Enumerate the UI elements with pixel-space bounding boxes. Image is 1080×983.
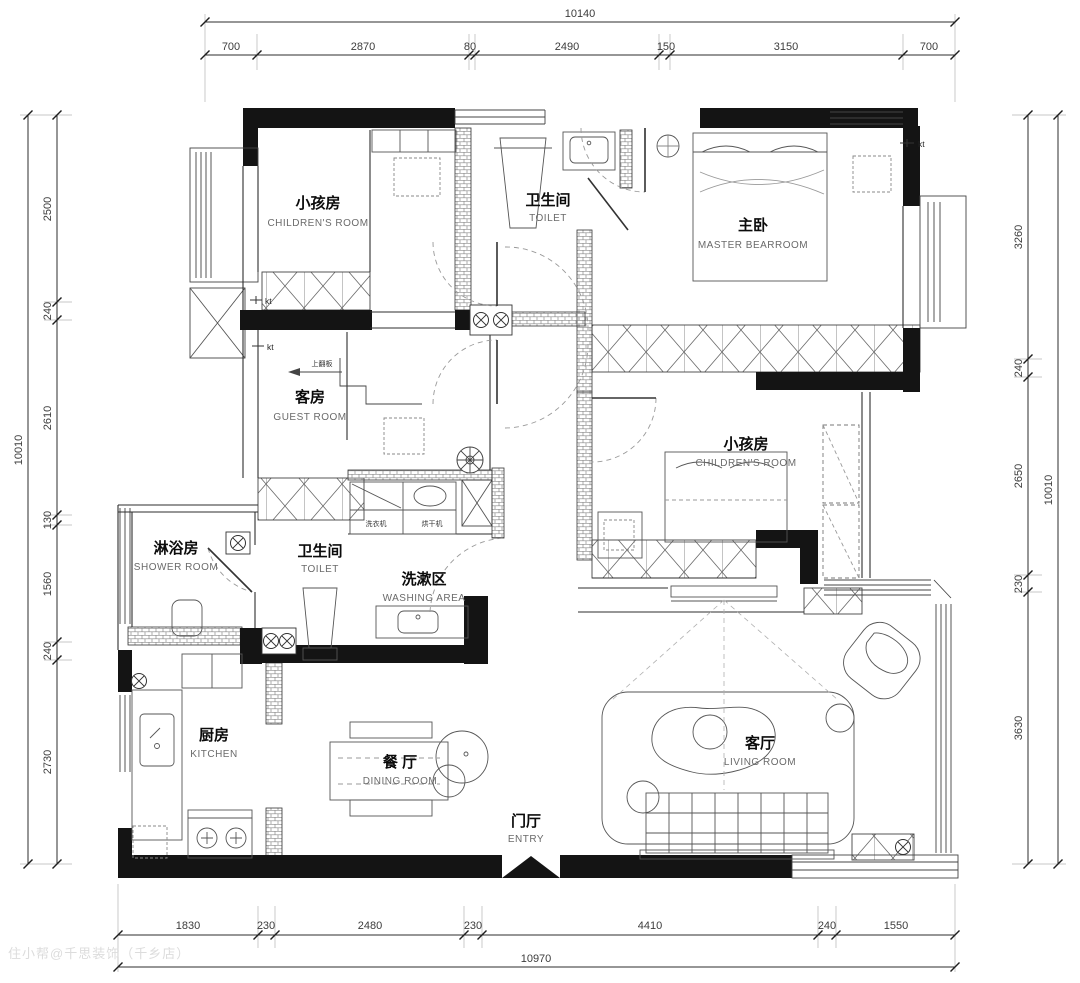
hatched-walls [128, 128, 632, 857]
solid-walls [118, 108, 920, 878]
room-shower-zh: 淋浴房 [153, 539, 198, 557]
floorplan-drawing: 10140 700 2870 80 2490 150 3150 700 1097… [0, 0, 1080, 983]
dim-top-0: 700 [222, 41, 240, 53]
dim-bottom-1: 230 [257, 920, 275, 932]
dim-right-0: 3260 [1013, 225, 1025, 249]
dim-top-2: 80 [464, 41, 476, 53]
dim-right-3: 230 [1013, 575, 1025, 593]
room-guest-zh: 客房 [294, 388, 325, 406]
room-children-top-en: CHILDREN'S ROOM [267, 218, 368, 229]
dim-bottom-4: 4410 [638, 920, 662, 932]
room-toilet-top-en: TOILET [529, 213, 567, 224]
room-guest-en: GUEST ROOM [273, 412, 346, 423]
dim-left-6: 2730 [42, 750, 54, 774]
room-dining-en: DINING ROOM [363, 776, 437, 787]
room-washing-zh: 洗漱区 [401, 570, 446, 588]
dim-bottom-total: 10970 [521, 953, 552, 965]
dim-top-1: 2870 [351, 41, 375, 53]
dim-left-0: 2500 [42, 197, 54, 221]
dim-bottom-0: 1830 [176, 920, 200, 932]
room-living-zh: 客厅 [744, 734, 775, 752]
room-kitchen-en: KITCHEN [190, 749, 237, 760]
room-kitchen-zh: 厨房 [199, 726, 229, 744]
floorplan-canvas: 10140 700 2870 80 2490 150 3150 700 1097… [0, 0, 1080, 983]
compass-wheel-icon [457, 447, 483, 473]
dim-top-6: 700 [920, 41, 938, 53]
room-living-en: LIVING ROOM [724, 757, 796, 768]
ac-label-2: kt [267, 342, 274, 352]
dim-bottom-6: 1550 [884, 920, 908, 932]
room-master-en: MASTER BEARROOM [698, 240, 808, 251]
dryer-label: 烘干机 [422, 519, 443, 528]
ac-label-3: kt [918, 139, 925, 149]
dim-left-1: 240 [42, 302, 54, 320]
dim-bottom-3: 230 [464, 920, 482, 932]
dim-left-2: 2610 [42, 406, 54, 430]
dim-right-2: 2650 [1013, 464, 1025, 488]
flip-panel-label: 上翻板 [312, 359, 333, 368]
room-washing-en: WASHING AREA [383, 593, 466, 604]
dim-right-1: 240 [1013, 359, 1025, 377]
dim-top-4: 150 [657, 41, 675, 53]
floor-drain-symbols [132, 313, 911, 855]
room-entry-zh: 门厅 [511, 812, 541, 830]
dim-left-5: 240 [42, 642, 54, 660]
room-entry-en: ENTRY [508, 834, 544, 845]
dim-bottom-2: 2480 [358, 920, 382, 932]
dim-bottom-5: 240 [818, 920, 836, 932]
room-toilet-mid-zh: 卫生间 [297, 542, 342, 560]
dim-top-5: 3150 [774, 41, 798, 53]
room-shower-en: SHOWER ROOM [134, 562, 218, 573]
ac-label-1: kt [265, 296, 272, 306]
room-toilet-mid-en: TOILET [301, 564, 339, 575]
dim-right-total: 10010 [1043, 475, 1055, 506]
dim-left-3: 130 [42, 511, 54, 529]
dim-left-total: 10010 [13, 435, 25, 466]
room-children-right-en: CHILDREN'S ROOM [695, 458, 796, 469]
dim-left-4: 1560 [42, 572, 54, 596]
dim-top-total: 10140 [565, 8, 596, 20]
windows [120, 110, 966, 878]
room-children-top-zh: 小孩房 [295, 194, 340, 212]
room-master-zh: 主卧 [738, 216, 768, 234]
dim-top-3: 2490 [555, 41, 579, 53]
washer-label: 洗衣机 [366, 519, 387, 528]
room-toilet-top-zh: 卫生间 [525, 191, 570, 209]
furniture [132, 130, 928, 859]
watermark: 住小帮@千思装饰（千乡店） [8, 946, 190, 961]
room-children-right-zh: 小孩房 [723, 435, 768, 453]
room-dining-zh: 餐 厅 [383, 753, 417, 771]
dim-right-4: 3630 [1013, 716, 1025, 740]
